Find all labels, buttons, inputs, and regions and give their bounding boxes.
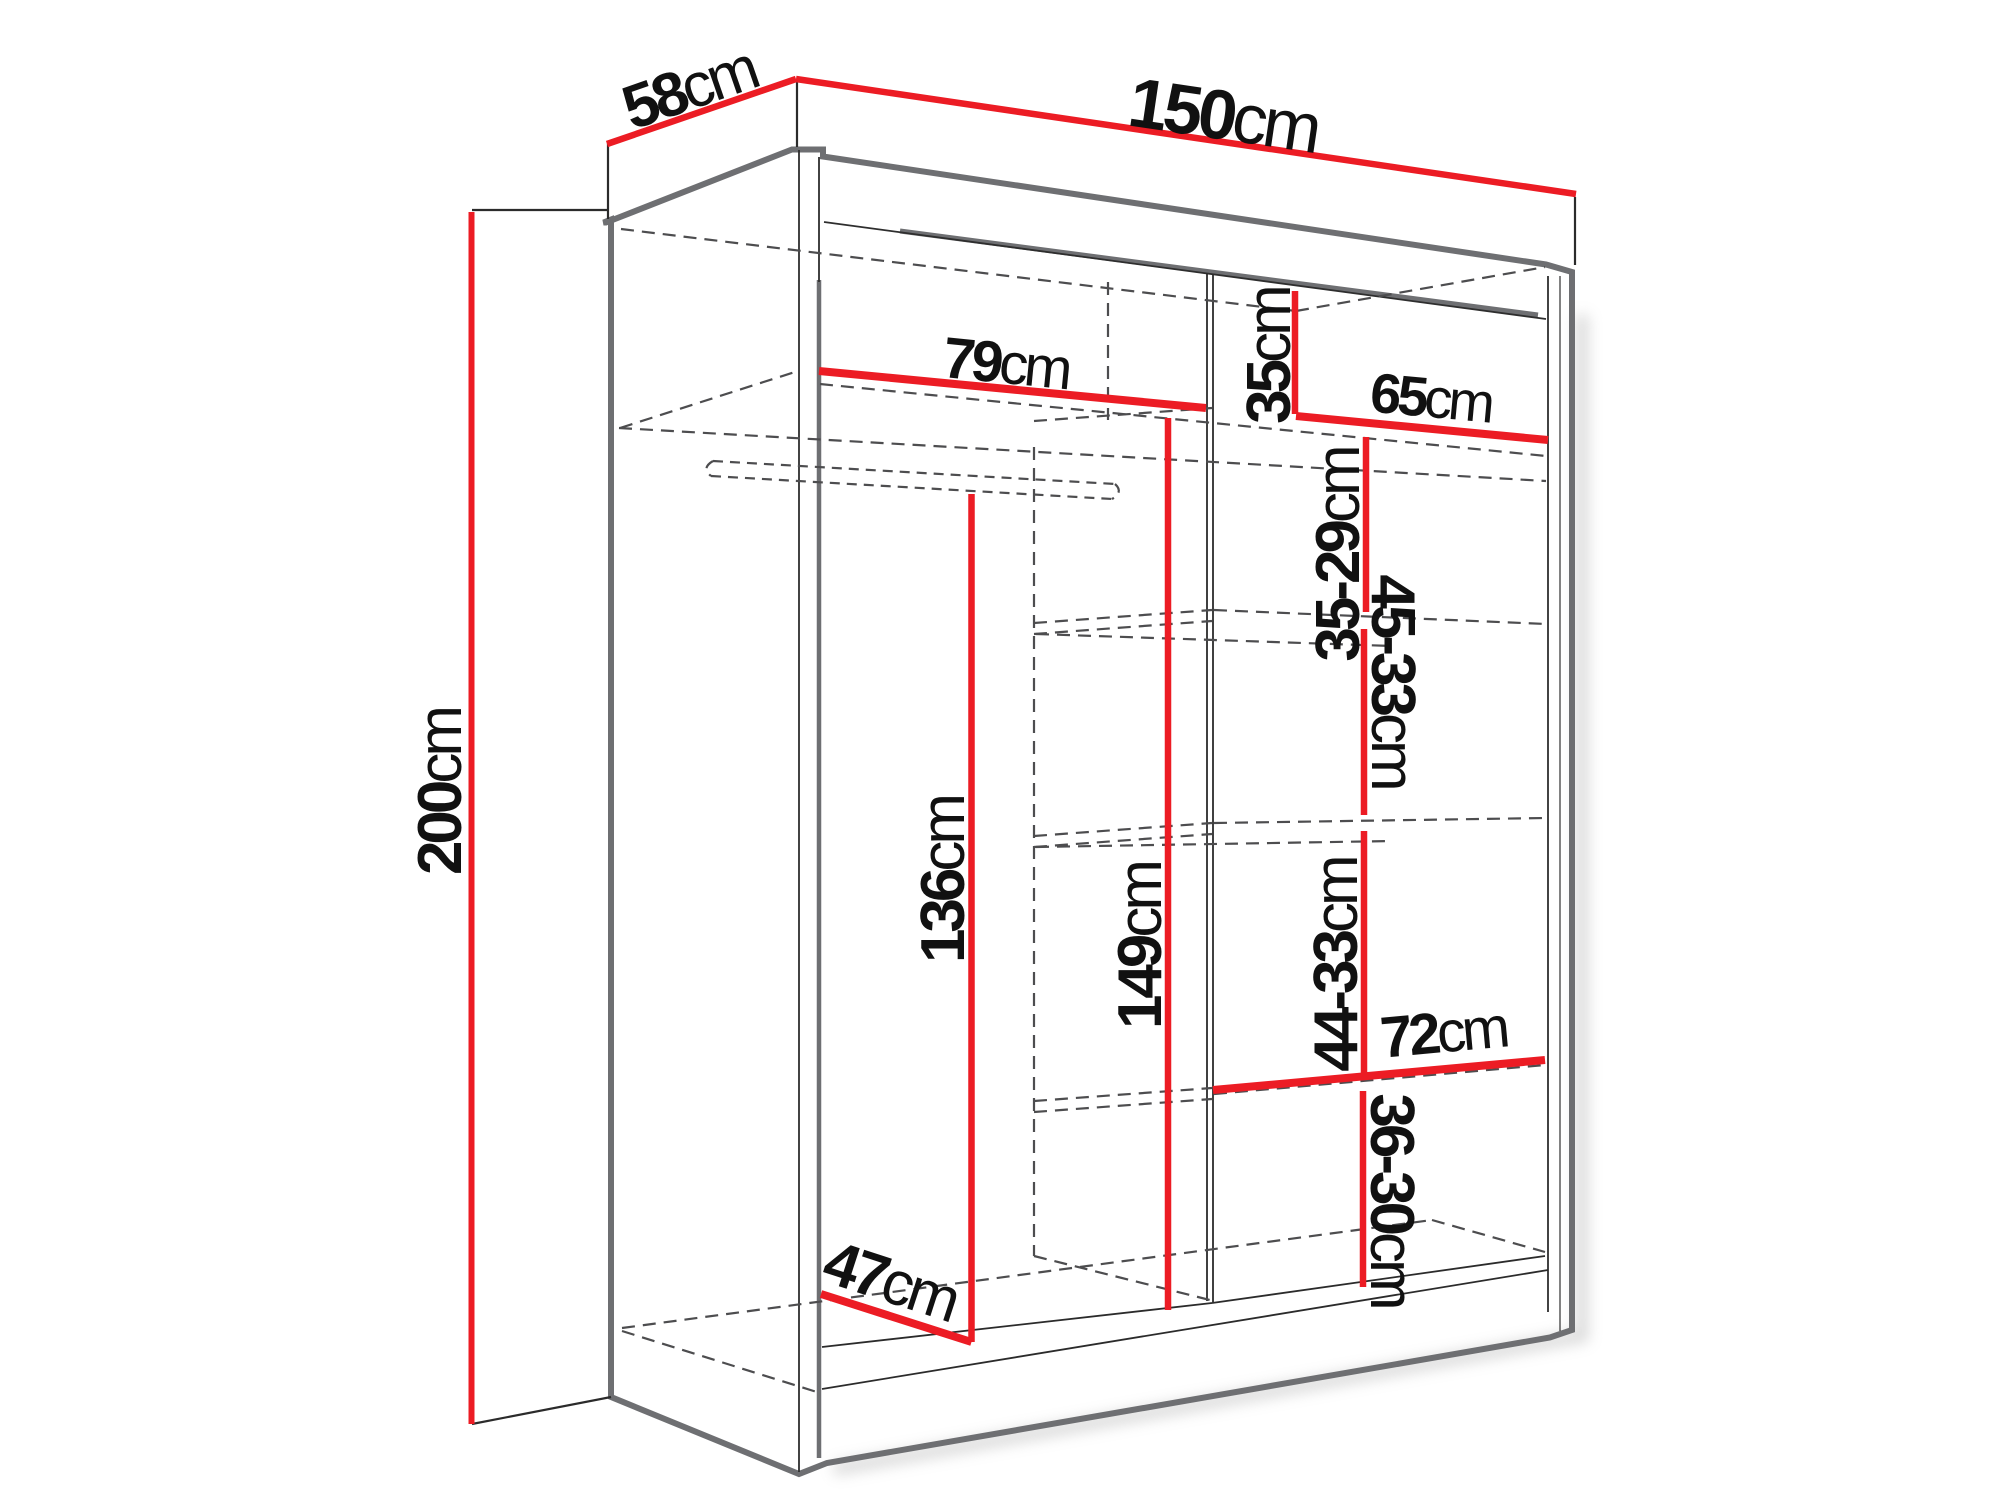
svg-text:72cm: 72cm <box>1378 994 1510 1070</box>
svg-text:136cm: 136cm <box>909 797 978 963</box>
svg-text:44-33cm: 44-33cm <box>1302 858 1371 1072</box>
svg-text:65cm: 65cm <box>1368 361 1495 435</box>
svg-text:149cm: 149cm <box>1106 863 1175 1029</box>
svg-text:200cm: 200cm <box>406 709 475 875</box>
svg-text:79cm: 79cm <box>940 325 1072 402</box>
svg-text:36-30cm: 36-30cm <box>1357 1093 1426 1307</box>
svg-text:35cm: 35cm <box>1235 288 1304 424</box>
svg-text:45-33cm: 45-33cm <box>1358 574 1427 788</box>
